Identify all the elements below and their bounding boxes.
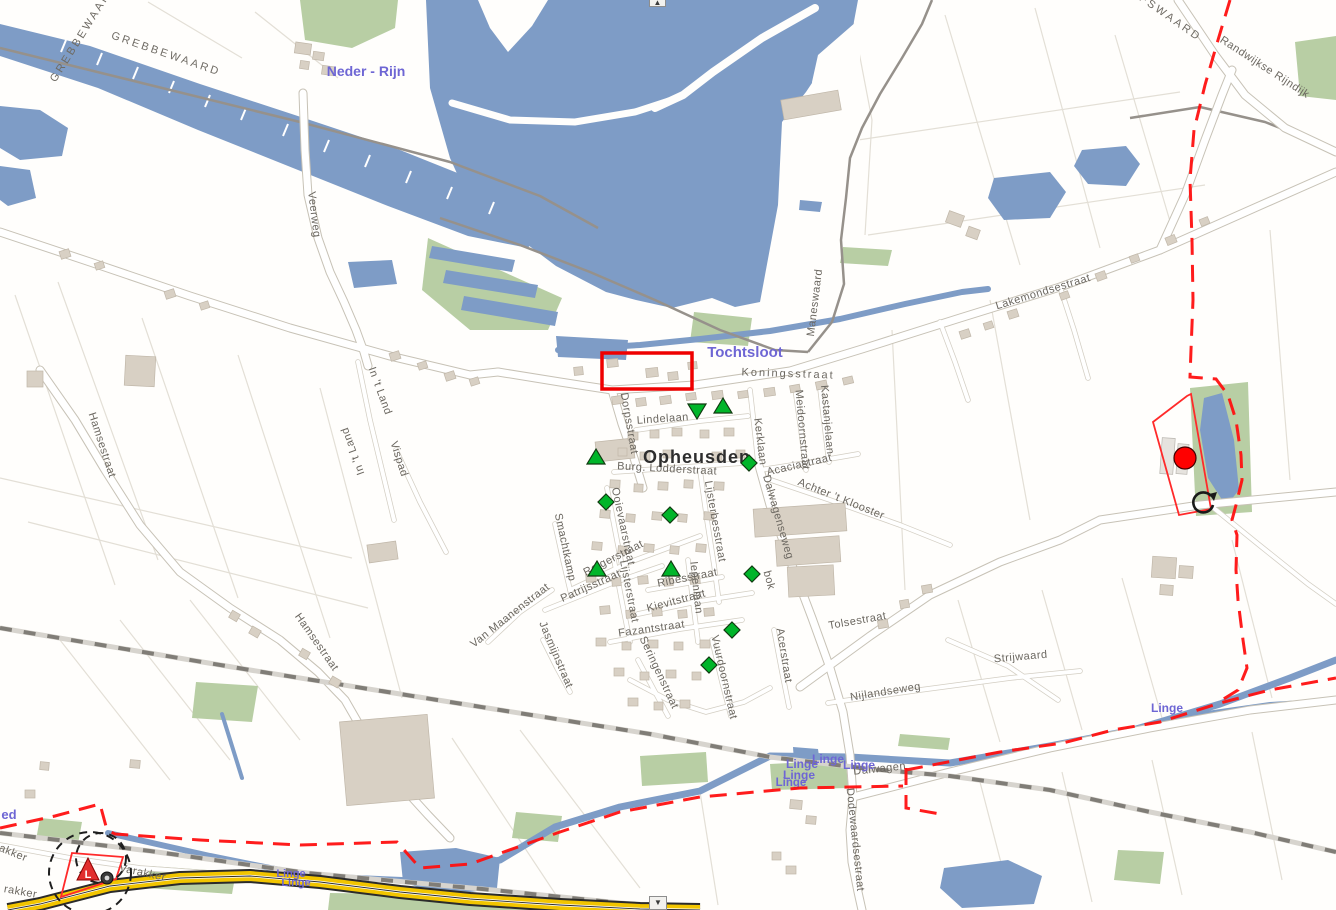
building	[622, 642, 631, 650]
building	[640, 672, 649, 680]
water-name-label: Linge	[1151, 701, 1183, 715]
building	[790, 799, 803, 809]
panel-toggle-top-button[interactable]: ▲	[649, 0, 666, 7]
building	[600, 606, 611, 615]
panel-toggle-bottom-button[interactable]: ▼	[649, 896, 667, 910]
green-area	[640, 752, 708, 786]
building	[672, 428, 682, 436]
building	[668, 371, 679, 380]
incident-warning-glyph: L	[85, 869, 92, 881]
building	[678, 610, 688, 619]
building	[786, 866, 796, 874]
building	[124, 355, 156, 387]
building	[772, 852, 781, 860]
building	[700, 430, 709, 438]
water-polygon	[799, 200, 822, 212]
building	[787, 565, 835, 597]
building	[294, 42, 311, 55]
building	[1179, 566, 1194, 579]
building	[628, 698, 638, 706]
building	[299, 60, 309, 69]
building	[130, 760, 141, 769]
building	[738, 390, 749, 398]
building	[686, 392, 697, 400]
water-name-label: Linge	[843, 758, 875, 772]
building	[40, 762, 50, 771]
building	[700, 640, 710, 648]
building	[312, 51, 324, 60]
camera-dot-lens	[105, 876, 110, 881]
building	[650, 430, 659, 438]
water-polygon	[348, 260, 397, 288]
building	[635, 397, 646, 406]
water-name-label: Neder - Rijn	[327, 63, 406, 79]
building	[638, 576, 649, 585]
building	[674, 642, 683, 650]
building	[684, 480, 693, 488]
town-name-label: Opheusden	[643, 447, 751, 467]
building	[1160, 585, 1174, 596]
building	[659, 395, 671, 404]
building	[658, 482, 668, 491]
map-viewport[interactable]: GREBBEWAARDGREBBEWAARDNeder - RijnVeerwe…	[0, 0, 1336, 910]
building	[634, 484, 643, 492]
building	[763, 387, 775, 396]
building	[692, 672, 701, 680]
building	[25, 790, 35, 798]
building	[27, 371, 43, 387]
building	[340, 714, 435, 805]
building	[724, 428, 734, 436]
building	[652, 512, 663, 521]
selected-facility-marker[interactable]	[1174, 447, 1196, 469]
water-name-label: ed	[1, 807, 16, 822]
building	[753, 503, 847, 537]
green-area	[840, 247, 892, 266]
building	[607, 358, 619, 367]
building	[696, 544, 707, 553]
building	[646, 367, 659, 377]
building	[574, 367, 584, 376]
building	[921, 584, 932, 594]
map-canvas[interactable]: GREBBEWAARDGREBBEWAARDNeder - RijnVeerwe…	[0, 0, 1336, 910]
building	[670, 546, 680, 555]
building	[678, 514, 688, 523]
building	[899, 599, 909, 608]
water-name-label: Linge	[281, 877, 310, 889]
building	[367, 541, 398, 563]
building	[654, 702, 663, 710]
building	[711, 390, 723, 399]
building	[592, 542, 603, 551]
building	[614, 668, 624, 676]
green-area	[192, 682, 258, 722]
building	[680, 700, 690, 708]
building	[806, 816, 817, 825]
green-area	[1114, 850, 1164, 884]
water-name-label: Tochtsloot	[707, 344, 783, 361]
building	[600, 510, 611, 519]
building	[1151, 556, 1176, 579]
building	[596, 638, 606, 646]
building	[618, 448, 627, 456]
